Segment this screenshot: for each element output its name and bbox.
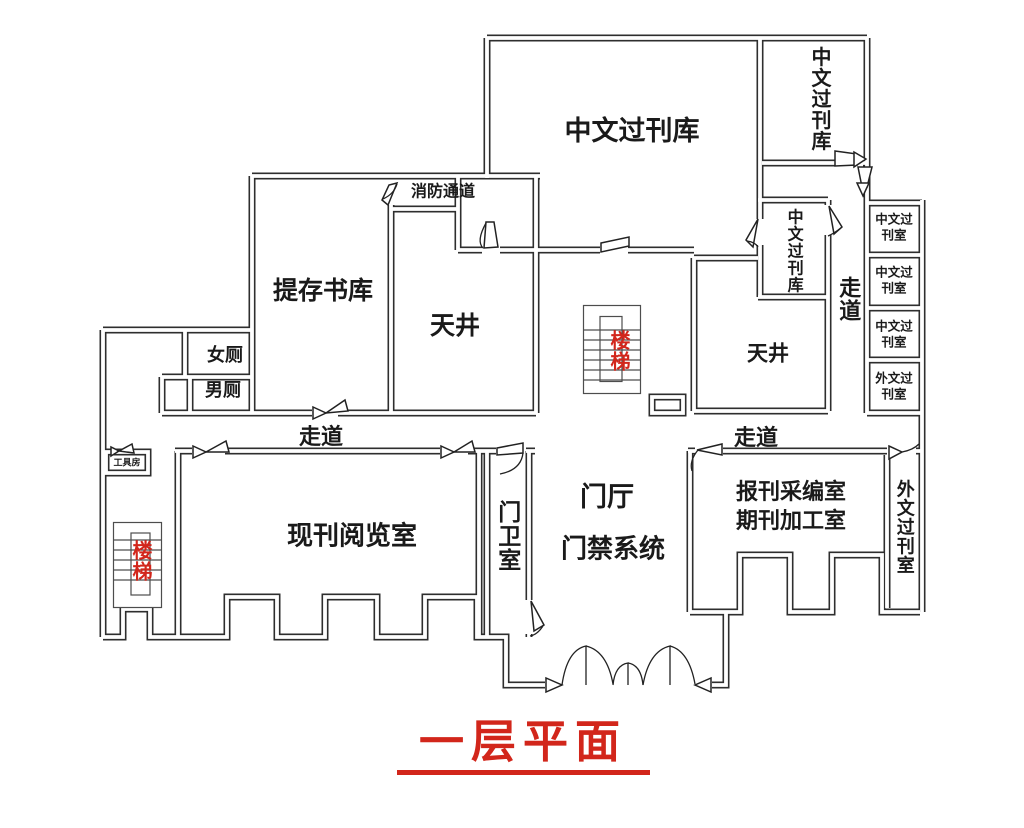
room-label-foreign-archive: 外文过刊室 bbox=[893, 480, 915, 575]
room-label-fire-passage: 消防通道 bbox=[411, 182, 475, 201]
entrance-double-door-icon bbox=[546, 646, 711, 692]
stairs-label-left: 楼梯 bbox=[128, 540, 152, 582]
door-swing-icon bbox=[601, 237, 629, 252]
floorplan-page: 中文过刊库 中文过刊库 消防通道 提存书库 天井 中文过刊库 走道 天井 中文过… bbox=[0, 0, 1024, 828]
room-label-small-room-3: 中文过刊室 bbox=[873, 319, 915, 350]
room-label-small-room-1: 中文过刊室 bbox=[873, 212, 915, 243]
page-title: 一层平面 bbox=[419, 715, 627, 769]
door-swing-icon bbox=[889, 444, 919, 459]
room-label-small-room-4: 外文过刊室 bbox=[873, 371, 915, 402]
room-label-tool-room: 工具房 bbox=[113, 458, 140, 469]
room-label-entrance-hall: 门厅 bbox=[580, 481, 634, 513]
door-swing-icon bbox=[193, 441, 229, 458]
room-label-small-room-2: 中文过刊室 bbox=[873, 265, 915, 296]
door-swing-icon bbox=[746, 219, 758, 247]
corridor-label-right: 走道 bbox=[734, 425, 778, 451]
room-label-editing-line1: 报刊采编室 bbox=[736, 477, 846, 506]
door-swing-icon bbox=[691, 444, 722, 471]
room-label-reading-room: 现刊阅览室 bbox=[287, 520, 417, 551]
door-swing-icon bbox=[441, 441, 475, 458]
room-label-chinese-archive-small: 中文过刊库 bbox=[783, 209, 802, 294]
room-label-lightwell-left: 天井 bbox=[430, 311, 480, 341]
room-label-lightwell-right: 天井 bbox=[747, 341, 789, 366]
door-swing-icon bbox=[530, 601, 544, 636]
room-label-deposit-stack: 提存书库 bbox=[273, 276, 373, 306]
room-label-editing-processing: 报刊采编室 期刊加工室 bbox=[736, 477, 846, 535]
stairs-label-middle: 楼梯 bbox=[606, 330, 630, 372]
door-swing-icon bbox=[382, 183, 397, 205]
door-swing-icon bbox=[480, 222, 498, 248]
corridor-label-left: 走道 bbox=[299, 424, 343, 450]
room-label-chinese-archive-main: 中文过刊库 bbox=[565, 115, 700, 147]
label-access-control: 门禁系统 bbox=[561, 533, 665, 564]
room-label-editing-line2: 期刊加工室 bbox=[736, 506, 846, 535]
title-underline bbox=[397, 770, 650, 775]
floorplan-drawing bbox=[0, 0, 1024, 828]
room-label-guard-room: 门卫室 bbox=[493, 500, 521, 572]
room-label-mens-toilet: 男厕 bbox=[205, 380, 241, 402]
room-label-chinese-archive-top-right: 中文过刊库 bbox=[807, 47, 831, 152]
corridor-label-vertical: 走道 bbox=[835, 276, 861, 322]
door-swing-icon bbox=[828, 206, 842, 236]
door-swing-icon bbox=[497, 443, 523, 474]
room-label-womens-toilet: 女厕 bbox=[207, 345, 243, 367]
